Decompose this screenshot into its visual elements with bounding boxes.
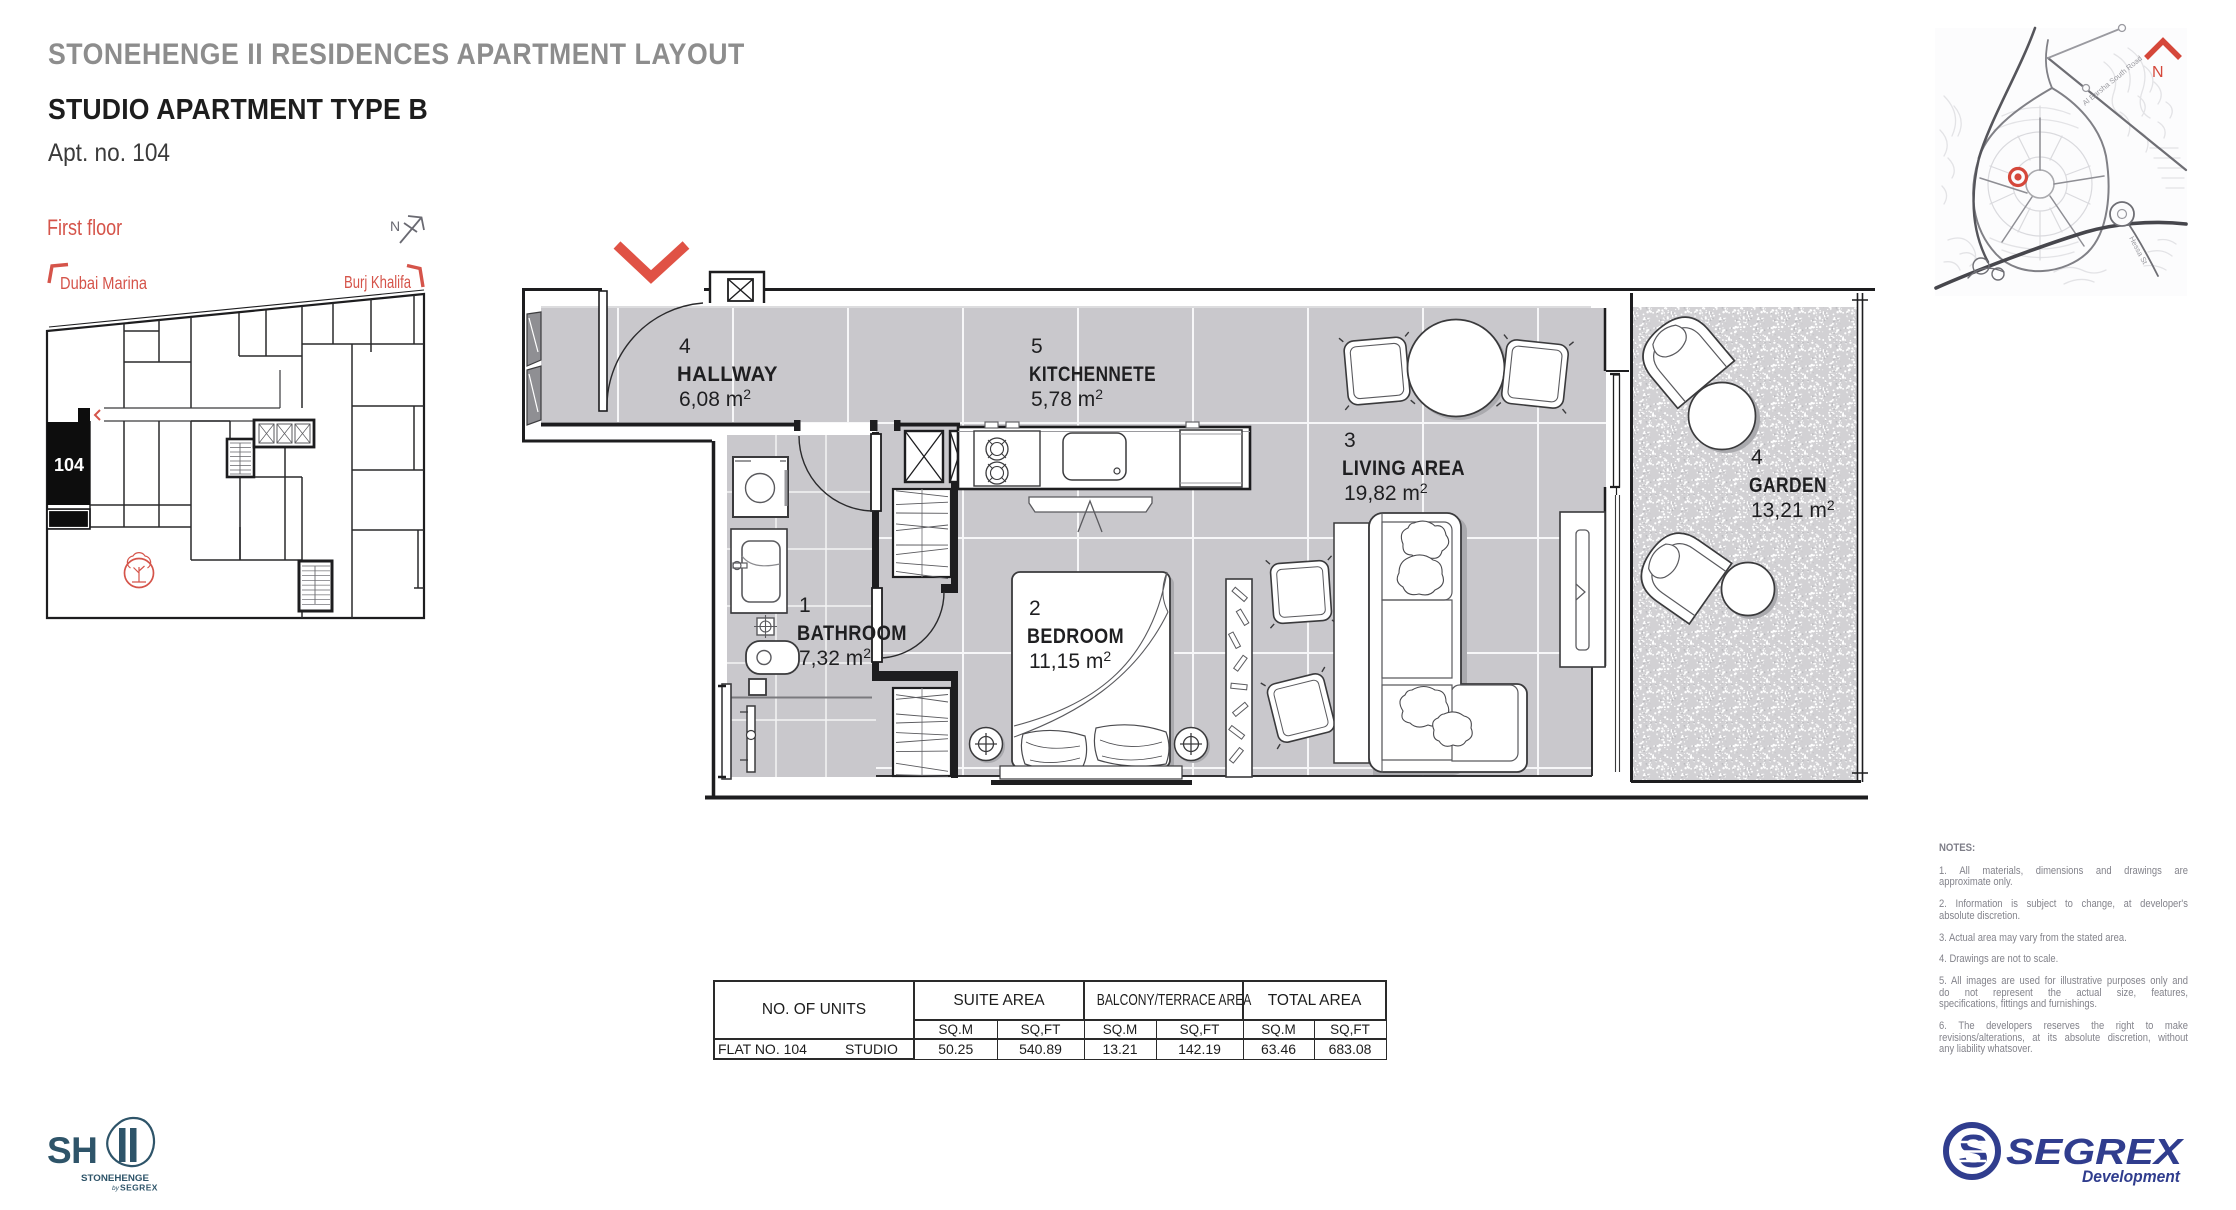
- svg-text:SEGREX: SEGREX: [120, 1183, 158, 1193]
- svg-text:1: 1: [799, 594, 811, 617]
- svg-text:2: 2: [1029, 597, 1041, 620]
- svg-text:N: N: [390, 218, 400, 234]
- svg-text:HALLWAY: HALLWAY: [677, 362, 778, 386]
- svg-text:4: 4: [1751, 446, 1763, 469]
- svg-text:104: 104: [54, 455, 84, 475]
- svg-text:4: 4: [679, 335, 691, 358]
- svg-text:KITCHENNETE: KITCHENNETE: [1029, 362, 1156, 386]
- svg-text:19,82 m2: 19,82 m2: [1344, 480, 1428, 505]
- svg-text:5: 5: [1031, 335, 1043, 358]
- svg-text:SEGREX: SEGREX: [2006, 1131, 2184, 1172]
- svg-text:BATHROOM: BATHROOM: [797, 621, 907, 645]
- svg-text:by: by: [112, 1185, 120, 1192]
- svg-text:13,21 m2: 13,21 m2: [1751, 497, 1835, 522]
- svg-text:STONEHENGE: STONEHENGE: [81, 1172, 149, 1183]
- svg-text:BEDROOM: BEDROOM: [1027, 624, 1124, 648]
- svg-text:LIVING AREA: LIVING AREA: [1342, 456, 1465, 480]
- svg-text:7,32 m2: 7,32 m2: [799, 645, 871, 670]
- svg-text:5,78 m2: 5,78 m2: [1031, 386, 1103, 411]
- svg-text:Dubai Marina: Dubai Marina: [60, 273, 147, 293]
- svg-text:3: 3: [1344, 429, 1356, 452]
- svg-text:GARDEN: GARDEN: [1749, 473, 1827, 497]
- svg-text:Burj Khalifa: Burj Khalifa: [344, 272, 411, 292]
- svg-text:11,15 m2: 11,15 m2: [1029, 648, 1111, 673]
- svg-text:N: N: [2152, 64, 2164, 81]
- svg-text:Development: Development: [2082, 1168, 2181, 1186]
- svg-text:6,08 m2: 6,08 m2: [679, 386, 751, 411]
- svg-text:SH: SH: [47, 1130, 97, 1171]
